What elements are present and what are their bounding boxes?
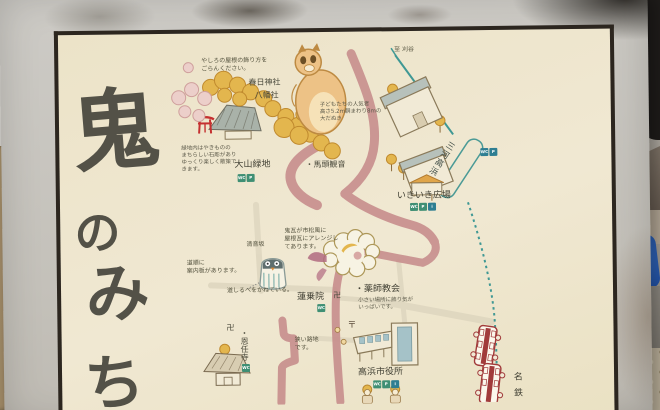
note-ryokuchi: 緑地内はやきものの まちらしい石彫があり ゆっくり楽しく散策で きます。 (181, 145, 236, 174)
label-to-kariya: 至 刈谷 (394, 46, 414, 54)
station-buildings (380, 77, 455, 197)
note-tanuki: 子どもたちの人気者 高さ5.2m胴まわり8mの 大だぬき (320, 101, 382, 123)
title-char-oni: 鬼 (66, 57, 164, 191)
manji-icon-renjoin: 卍 (333, 291, 341, 301)
label-cityhall: 高浜市役所 (358, 367, 403, 379)
post-office-mark: 〒 (347, 321, 356, 333)
facility-icons-oyama: WC P (238, 174, 255, 182)
photo-of-map-signboard: 鬼 の み ち やしろの屋根の飾り方を ごらんください。 春日神社 八幡社 子ど… (0, 0, 660, 410)
label-slope: 清音坂 (246, 241, 264, 249)
label-meitetsu: 名鉄 (510, 372, 522, 404)
label-onninji: ・恩任寺 (238, 329, 249, 361)
map-panel: 鬼 の み ち やしろの屋根の飾り方を ごらんください。 春日神社 八幡社 子ど… (54, 24, 619, 410)
label-kasuga-shrine: 春日神社 (248, 78, 280, 89)
label-bato-kannon: ・馬頭観音 (305, 160, 345, 171)
label-renjoin: 蓮乗院 (297, 292, 324, 304)
note-onigawara: 鬼瓦が市松風に 屋根瓦にアレンジし てあります。 (284, 227, 338, 251)
info-icon: i (391, 380, 399, 388)
title-char-mi: み (82, 241, 152, 337)
facility-icons-cityhall: WC P i (373, 380, 399, 388)
label-ikiiki-hiroba: いきいき広場 (397, 190, 451, 202)
wc-icon: WC (317, 304, 325, 312)
parking-icon: P (419, 203, 427, 211)
parking-icon: P (247, 174, 255, 182)
facility-icons-onninji: WC (242, 364, 250, 372)
facility-icons-ikiiki: WC P i (410, 203, 436, 211)
facility-icons-station: WC P (480, 148, 497, 156)
facility-icons-renjoin: WC (317, 304, 325, 312)
wc-icon: WC (373, 380, 381, 388)
train-icons (469, 324, 506, 406)
note-yakushi: 小さい場所に飾り気が いっぱいです。 (358, 297, 413, 312)
parking-icon: P (382, 380, 390, 388)
wc-icon: WC (238, 174, 246, 182)
label-hachiman-shrine: 八幡社 (255, 91, 279, 102)
manji-icon-onninji: 卍 (226, 323, 234, 333)
note-shrine-roof: やしろの屋根の飾り方を ごらんください。 (201, 57, 267, 73)
note-guideboards: 道順に 案内板があります。 (187, 259, 241, 275)
label-oyama-ryokuchi: 大山緑地 (234, 160, 270, 172)
title-char-chi: ち (82, 333, 146, 410)
note-alley: 狭い路地 です。 (295, 336, 319, 352)
shrine-building (209, 105, 261, 140)
wc-icon: WC (410, 203, 418, 211)
wc-icon: WC (242, 364, 250, 372)
sign-frame: 鬼 の み ち やしろの屋根の飾り方を ごらんください。 春日神社 八幡社 子ど… (0, 0, 653, 410)
note-michishirube: 道しるべをかねている。 (227, 286, 293, 295)
label-yakushi-kyokai: ・薬師教会 (355, 284, 400, 296)
parking-icon: P (489, 148, 497, 156)
wc-icon: WC (480, 148, 488, 156)
info-icon: i (428, 203, 436, 211)
